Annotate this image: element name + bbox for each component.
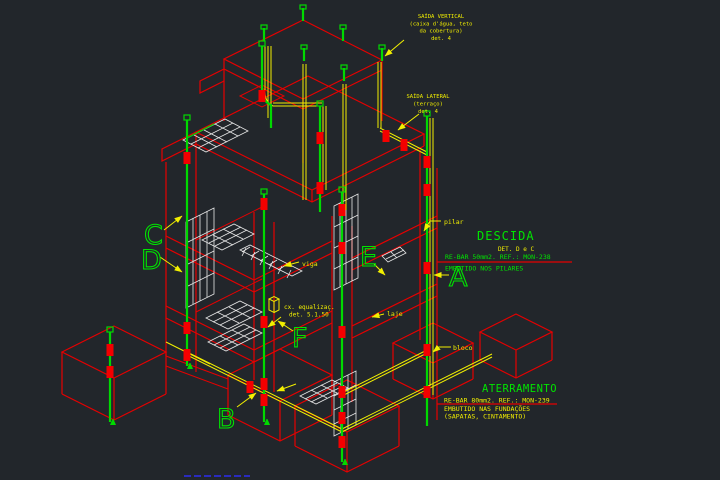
label-aterramento-spec: RE-BAR 80mm2. REF.: MON-239: [444, 397, 550, 405]
label-saida-vertical-1: SAÍDA VERTICAL: [418, 12, 465, 20]
label-cx-equalizacao-1: cx. equalizaç.: [284, 304, 335, 311]
marker-b: B: [217, 404, 236, 435]
label-descida-spec: RE-BAR 50mm2. REF.: MON-238: [445, 253, 551, 261]
label-saida-vertical-2: (caixa d'água, teto: [410, 21, 473, 28]
bloco-leader: [433, 347, 451, 352]
label-laje: laje: [387, 310, 403, 318]
label-saida-vertical-4: det. 4: [431, 36, 452, 42]
marker-f: F: [292, 323, 308, 354]
labels: SAÍDA VERTICAL (caixa d'água, teto da co…: [141, 12, 557, 435]
rebar-meshes: [183, 119, 406, 436]
label-aterramento-note2: (SAPATAS, CINTAMENTO): [444, 413, 526, 421]
building-structure: [162, 20, 572, 420]
cad-drawing-canvas: SAÍDA VERTICAL (caixa d'água, teto da co…: [0, 0, 720, 480]
label-saida-vertical-3: da cobertura): [419, 29, 462, 35]
marker-e: E: [360, 242, 377, 273]
label-pilar: pilar: [444, 218, 464, 226]
label-descida-title: DESCIDA: [477, 229, 535, 243]
label-saida-lateral-1: SAÍDA LATERAL: [406, 92, 450, 100]
spda-isometric-view: SAÍDA VERTICAL (caixa d'água, teto da co…: [0, 0, 720, 480]
label-saida-lateral-3: det. 4: [418, 109, 439, 115]
marker-b-arrow: [237, 393, 256, 407]
saida-vertical-arrow: [385, 40, 404, 56]
marker-a: A: [449, 262, 468, 293]
marker-c-arrow: [164, 216, 182, 230]
marker-f-arrow: [278, 321, 293, 331]
marker-d-arrow: [160, 257, 182, 272]
label-cx-equalizacao-2: det. 5.1.50: [289, 312, 329, 319]
label-bloco: bloco: [453, 344, 473, 352]
label-viga: viga: [302, 260, 318, 268]
marker-d: D: [141, 245, 162, 276]
air-terminal-pegs: [261, 5, 385, 81]
label-descida-detail: DET. D e C: [498, 246, 535, 253]
junction-arrow: [277, 384, 296, 391]
label-saida-lateral-2: (terraço): [413, 102, 443, 108]
label-aterramento-title: ATERRAMENTO: [482, 383, 557, 395]
